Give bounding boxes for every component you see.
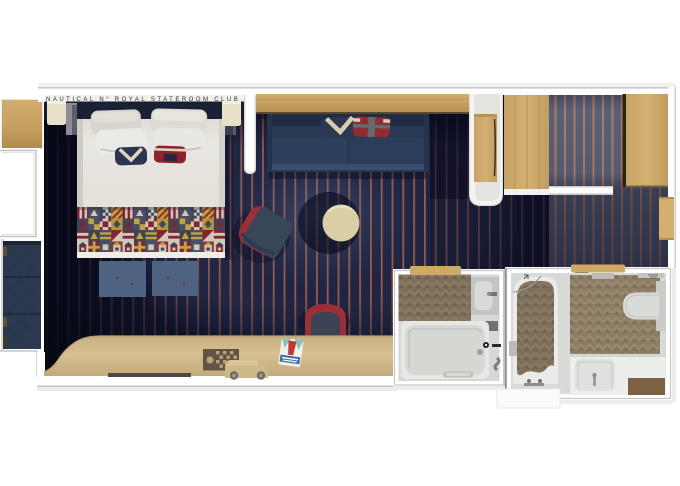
- svg-text:NAUTICAL N° ROYAL STATEROOM CL: NAUTICAL N° ROYAL STATEROOM CLUB: [46, 97, 240, 103]
